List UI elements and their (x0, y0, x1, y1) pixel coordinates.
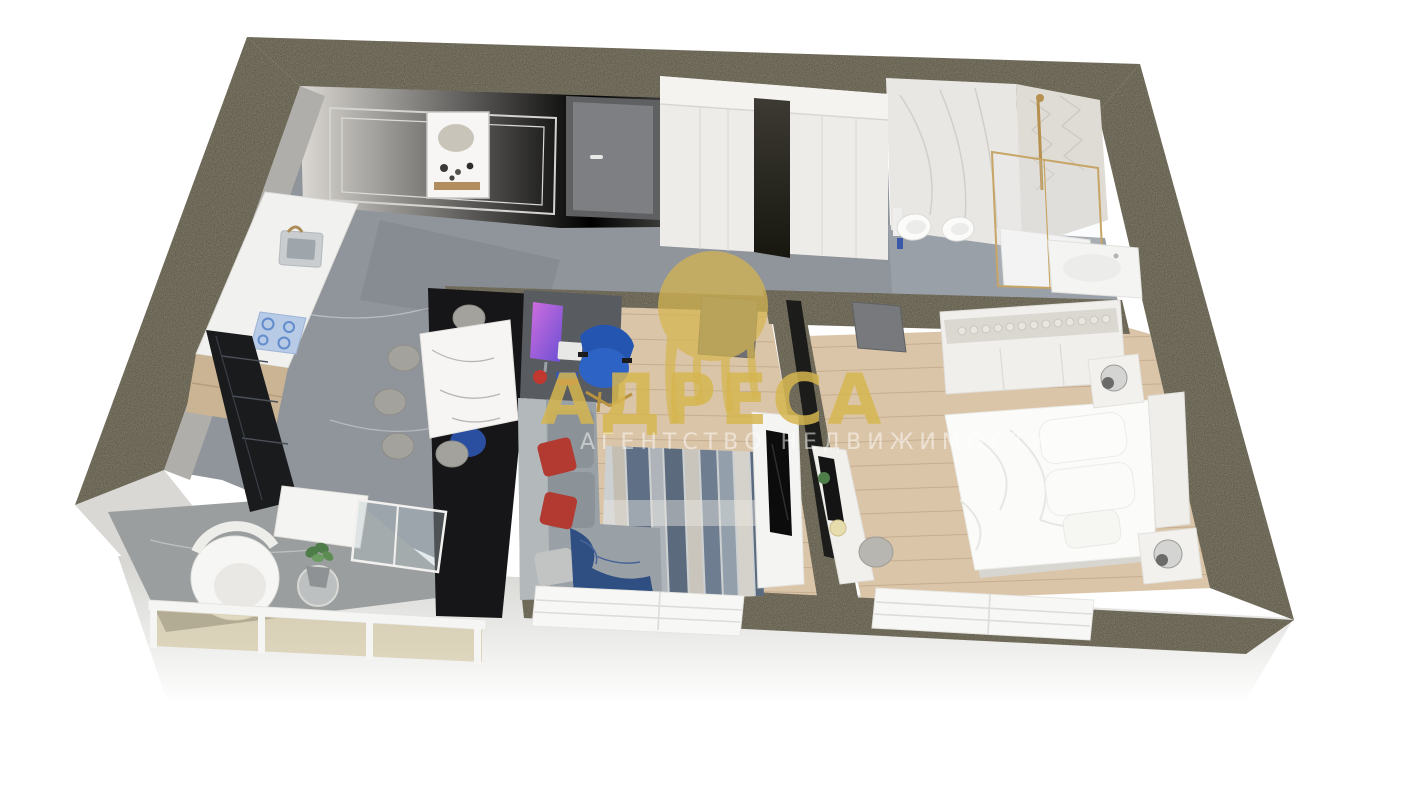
hall-wardrobe (660, 76, 888, 260)
nightstand-bottom (1138, 528, 1202, 584)
door-handle (590, 155, 603, 159)
dining-chair (374, 389, 406, 415)
dining-chair (388, 345, 420, 371)
watermark-brand: АДРЕСА (540, 359, 885, 441)
headboard (1148, 392, 1190, 528)
toilet-brush (897, 238, 903, 249)
bed-cushion (1062, 509, 1122, 550)
watermark-subtitle: АГЕНТСТВО НЕДВИЖИМОСТИ (580, 430, 1053, 455)
bedroom-door-open (852, 302, 906, 352)
dining-chair (436, 441, 468, 467)
cooktop (250, 312, 306, 354)
vanity-lamp (830, 520, 846, 536)
dining-chair (382, 433, 414, 459)
entrance-door (566, 96, 660, 220)
vanity-plant (818, 472, 830, 484)
wall-picture (427, 112, 489, 198)
vanity-chair (859, 537, 893, 567)
red-pillow (539, 491, 578, 530)
bathtub (1048, 240, 1142, 298)
gray-pillow (533, 547, 576, 587)
floorplan-render: АДРЕСА АГЕНТСТВО НЕДВИЖИМОСТИ (0, 0, 1422, 800)
shower-head (1036, 94, 1044, 102)
wardrobe-mirror (754, 98, 790, 258)
balcony-glass-door (352, 500, 446, 572)
nightstand-top (1088, 354, 1144, 408)
dining-table (420, 320, 518, 438)
floorplan-svg: АДРЕСА АГЕНТСТВО НЕДВИЖИМОСТИ (0, 0, 1422, 800)
keyboard (557, 341, 582, 361)
kitchen-sink (279, 227, 323, 267)
tub-faucet (1114, 254, 1119, 259)
